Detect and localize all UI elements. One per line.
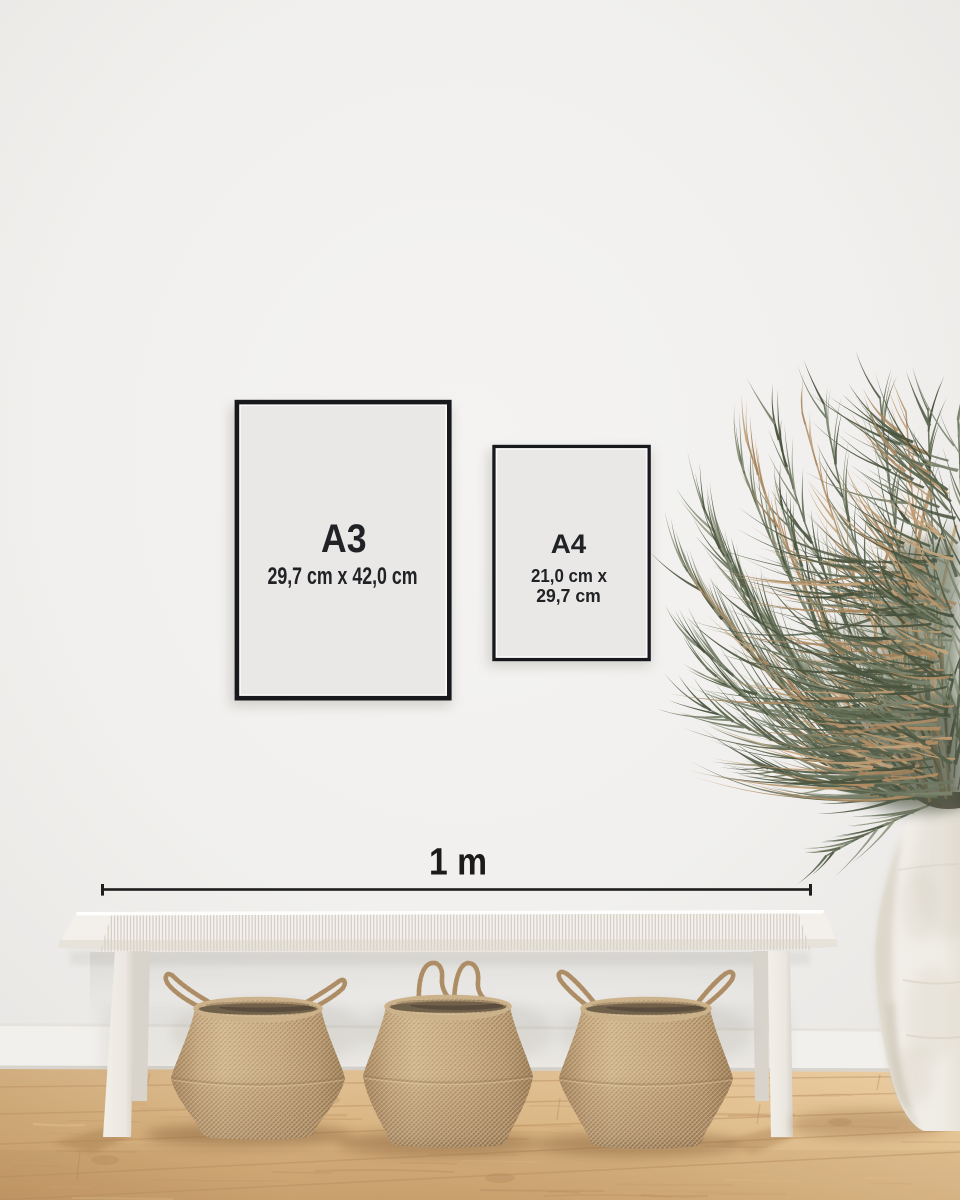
- svg-text:1 m: 1 m: [429, 841, 487, 883]
- svg-text:A3: A3: [321, 517, 367, 561]
- svg-text:21,0 cm x: 21,0 cm x: [531, 566, 607, 586]
- svg-text:29,7 cm x 42,0 cm: 29,7 cm x 42,0 cm: [268, 563, 418, 590]
- svg-text:A4: A4: [551, 529, 587, 559]
- svg-text:29,7 cm: 29,7 cm: [536, 586, 601, 606]
